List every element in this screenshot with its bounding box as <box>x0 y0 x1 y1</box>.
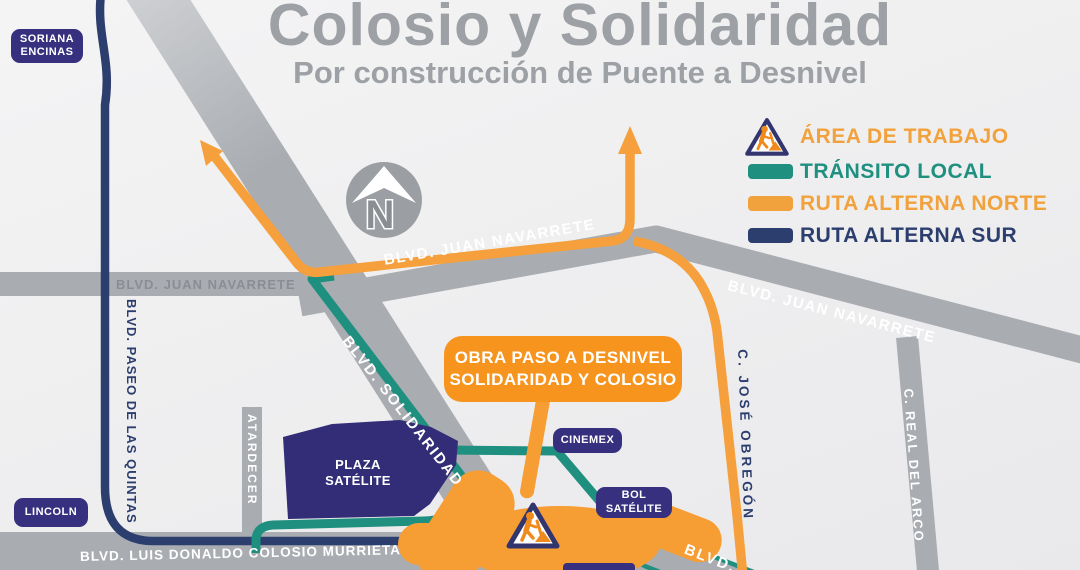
legend-item-area-trabajo: ÁREA DE TRABAJO <box>800 125 1009 149</box>
svg-text:N: N <box>366 193 395 237</box>
page-title: Colosio y Solidaridad <box>140 0 1020 59</box>
north-route-arrow-up-icon <box>618 126 642 154</box>
road-label-paseo-quintas: BLVD. PASEO DE LAS QUINTAS <box>124 299 139 524</box>
detour-map: N Colosio y Solidarida <box>0 0 1080 570</box>
legend-item-ruta-norte: RUTA ALTERNA NORTE <box>800 192 1047 216</box>
work-callout: OBRA PASO A DESNIVEL SOLIDARIDAD Y COLOS… <box>444 336 682 402</box>
cutoff-label-box <box>563 563 635 570</box>
road-label-atardecer: ATARDECER <box>245 414 259 506</box>
legend-bar-ruta-sur <box>748 228 793 243</box>
legend-item-transito-local: TRÁNSITO LOCAL <box>800 160 992 184</box>
place-cinemex: CINEMEX <box>553 428 622 453</box>
legend-bar-transito-local <box>748 164 793 179</box>
compass-icon: N <box>346 162 422 238</box>
work-callout-line1: OBRA PASO A DESNIVEL <box>444 347 682 369</box>
legend-work-area-sign-icon <box>747 120 786 154</box>
work-callout-line2: SOLIDARIDAD Y COLOSIO <box>444 369 682 391</box>
place-soriana-encinas: SORIANA ENCINAS <box>11 29 83 63</box>
place-bol-satelite: BOL SATÉLITE <box>596 487 672 518</box>
place-plaza-satelite: PLAZA SATÉLITE <box>318 457 398 490</box>
page-subtitle: Por construcción de Puente a Desnivel <box>140 55 1020 91</box>
road-label-juan-navarrete-left: BLVD. JUAN NAVARRETE <box>116 277 296 292</box>
place-lincoln: LINCOLN <box>14 498 88 527</box>
legend-bar-ruta-norte <box>748 196 793 211</box>
legend-item-ruta-sur: RUTA ALTERNA SUR <box>800 224 1017 248</box>
